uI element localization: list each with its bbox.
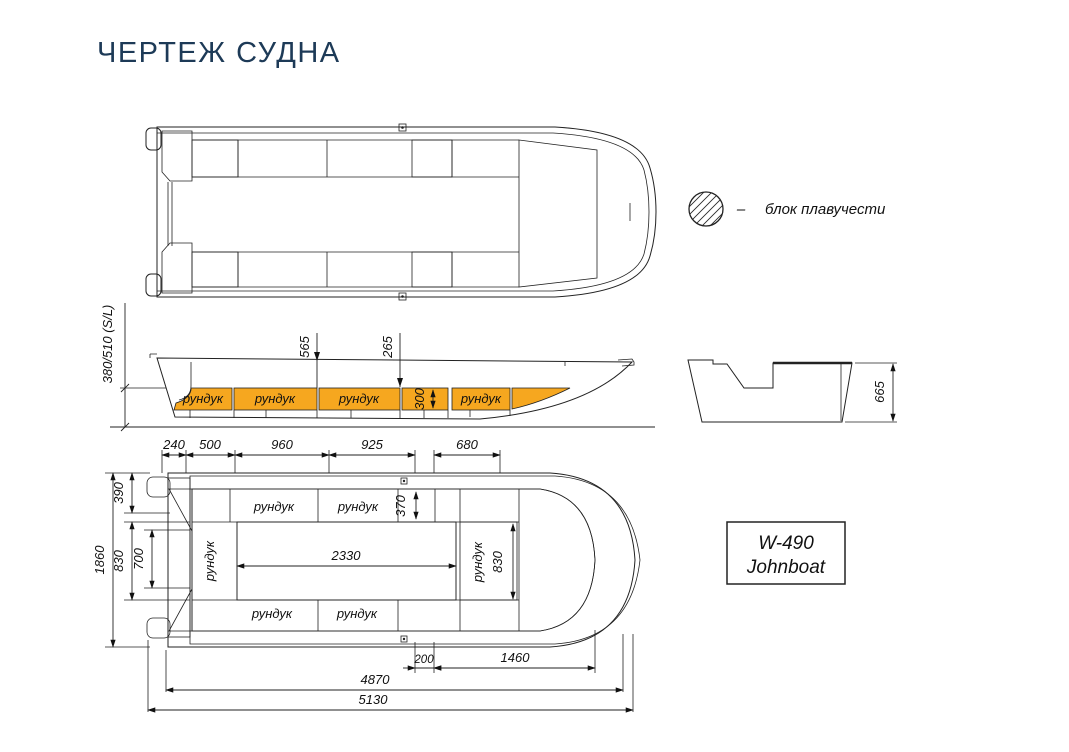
hull-outline	[157, 127, 656, 297]
side-locker-label: рундук	[182, 391, 224, 406]
buoyancy-block-side-bottom-1	[192, 252, 238, 287]
dim-265: 265	[380, 335, 395, 358]
dim-830-right: 830	[490, 550, 505, 572]
model-name: W-490	[758, 533, 814, 554]
buoyancy-block-stern-bottom	[162, 243, 192, 293]
transom-view: 665	[688, 360, 897, 422]
dim-transom-height: 380/510 (S/L)	[100, 305, 115, 384]
dim-565: 565	[297, 335, 312, 357]
deck-locker-label: рундук	[202, 540, 217, 582]
dim-5130: 5130	[359, 692, 389, 707]
dim-2330: 2330	[331, 548, 362, 563]
gunwale-inner-line	[157, 133, 649, 291]
dim-925: 925	[361, 437, 383, 452]
frame-ticks	[190, 410, 510, 418]
buoyancy-block-side-top-1	[192, 140, 238, 177]
model-type: Johnboat	[746, 557, 826, 578]
top-view	[146, 124, 656, 300]
dim-240: 240	[162, 437, 185, 452]
stern-corner-block-bottom	[169, 589, 192, 631]
dim-960: 960	[271, 437, 293, 452]
deck-locker-label: рундук	[251, 606, 293, 621]
side-locker-label: рундук	[460, 391, 502, 406]
boat-drawing: – блок плавучести рундук рундук рундук	[0, 0, 1069, 752]
side-locker-label: рундук	[338, 391, 380, 406]
legend: – блок плавучести	[689, 192, 886, 226]
dim-680: 680	[456, 437, 478, 452]
dim-390: 390	[111, 481, 126, 503]
dim-370: 370	[393, 494, 408, 516]
deck-locker-label: рундук	[470, 541, 485, 583]
deck-locker-label: рундук	[337, 499, 379, 514]
buoyancy-symbol-icon	[689, 192, 723, 226]
legend-label: блок плавучести	[765, 201, 886, 218]
side-locker-label: рундук	[254, 391, 296, 406]
stern-cap-line	[150, 354, 157, 358]
stern-corner-block-top	[169, 489, 192, 531]
deck-view: рундук рундук рундук рундук рундук рунду…	[92, 437, 640, 712]
dim-200: 200	[413, 654, 434, 666]
transom-dimension: 665	[845, 363, 897, 422]
side-view: рундук рундук рундук рундук 565 265 300 …	[100, 303, 655, 431]
side-locker-bow-taper	[512, 388, 570, 409]
drawing-page: ЧЕРТЕЖ СУДНА	[0, 0, 1069, 752]
dim-1460: 1460	[501, 650, 531, 665]
model-box: W-490 Johnboat	[727, 522, 845, 584]
transom-section	[688, 360, 852, 422]
buoyancy-blocks	[162, 131, 597, 293]
buoyancy-block-stern-top	[162, 131, 192, 181]
side-dimensions: 565 265 300 380/510 (S/L)	[100, 303, 433, 431]
buoyancy-block-side-top-2	[412, 140, 452, 177]
stern-handle-bottom	[146, 274, 161, 296]
dim-500: 500	[199, 437, 221, 452]
deck-locker-label: рундук	[336, 606, 378, 621]
dim-1860: 1860	[92, 545, 107, 575]
legend-separator: –	[736, 201, 746, 218]
dim-300: 300	[412, 387, 427, 409]
stern-handle-top	[146, 128, 161, 150]
stern-handle-top	[147, 477, 170, 497]
dim-830: 830	[111, 549, 126, 571]
deck-structure-lines	[168, 140, 630, 287]
deck-fitting-markers	[399, 124, 406, 300]
stern-handle-bottom	[147, 618, 170, 638]
dim-4870: 4870	[361, 672, 391, 687]
buoyancy-block-bow	[519, 140, 597, 287]
deck-locker-label: рундук	[253, 499, 295, 514]
buoyancy-block-side-bottom-2	[412, 252, 452, 287]
dim-700: 700	[131, 547, 146, 569]
dim-665: 665	[872, 380, 887, 402]
